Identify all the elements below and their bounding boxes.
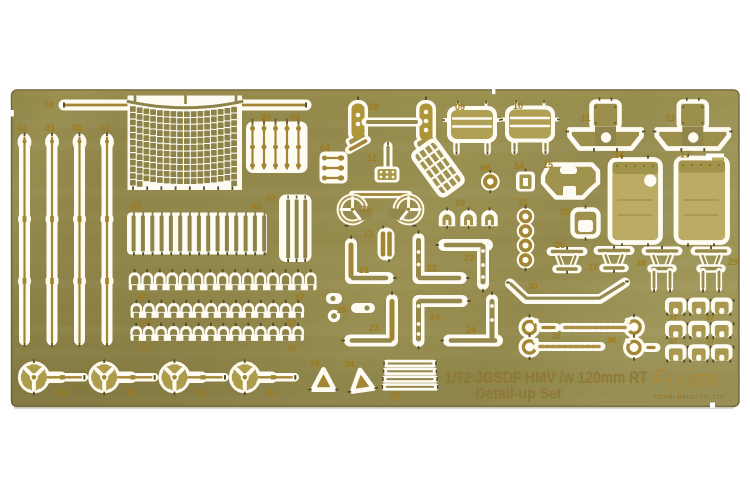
- svg-text:13: 13: [363, 229, 373, 239]
- svg-text:07: 07: [139, 292, 149, 302]
- svg-text:12: 12: [367, 153, 377, 163]
- svg-text:01: 01: [18, 123, 28, 133]
- svg-text:02: 02: [44, 100, 54, 110]
- svg-text:36: 36: [607, 336, 616, 345]
- svg-text:Fujimi: Fujimi: [652, 364, 719, 394]
- svg-text:35: 35: [390, 391, 400, 401]
- svg-text:21: 21: [359, 265, 369, 275]
- svg-text:19: 19: [455, 198, 465, 208]
- svg-text:16: 16: [614, 150, 624, 160]
- svg-text:34: 34: [345, 359, 355, 369]
- svg-text:03: 03: [131, 202, 141, 212]
- svg-text:33: 33: [267, 388, 277, 398]
- svg-text:37: 37: [669, 337, 677, 346]
- svg-text:23: 23: [369, 323, 379, 333]
- svg-text:32: 32: [266, 193, 276, 203]
- svg-text:34: 34: [310, 358, 320, 368]
- svg-text:01: 01: [73, 123, 83, 133]
- svg-text:36: 36: [552, 332, 561, 341]
- svg-text:03: 03: [251, 202, 261, 212]
- svg-text:07: 07: [287, 318, 297, 328]
- svg-text:10: 10: [513, 101, 523, 111]
- svg-text:30: 30: [528, 281, 538, 291]
- svg-text:18: 18: [361, 204, 371, 214]
- svg-text:20: 20: [560, 207, 570, 217]
- svg-text:08: 08: [369, 102, 379, 112]
- svg-text:01: 01: [100, 123, 110, 133]
- svg-text:FUJIMI MOKEI CO.,LTD: FUJIMI MOKEI CO.,LTD: [654, 395, 724, 401]
- svg-text:07: 07: [140, 318, 150, 328]
- svg-text:17: 17: [680, 150, 690, 160]
- svg-text:07: 07: [288, 343, 298, 353]
- svg-text:01: 01: [45, 123, 55, 133]
- svg-text:22: 22: [427, 263, 437, 273]
- svg-text:37: 37: [669, 313, 677, 322]
- svg-text:37: 37: [706, 337, 714, 346]
- svg-text:24: 24: [430, 312, 440, 322]
- svg-text:Detail-up Set: Detail-up Set: [476, 386, 563, 403]
- svg-text:26: 26: [555, 240, 565, 250]
- svg-text:09: 09: [455, 102, 465, 112]
- svg-text:11: 11: [581, 113, 591, 123]
- svg-text:05: 05: [261, 113, 271, 123]
- svg-text:28: 28: [636, 258, 646, 268]
- svg-text:14: 14: [514, 161, 524, 171]
- svg-text:04: 04: [320, 143, 330, 153]
- svg-text:15: 15: [543, 160, 553, 170]
- svg-text:07: 07: [140, 343, 150, 353]
- svg-text:1/72 JGSDF HMV /w 120mm RT: 1/72 JGSDF HMV /w 120mm RT: [445, 368, 648, 387]
- svg-text:22: 22: [464, 253, 474, 263]
- svg-text:05: 05: [290, 113, 300, 123]
- svg-text:33: 33: [197, 388, 207, 398]
- svg-text:37: 37: [706, 313, 714, 322]
- svg-text:11: 11: [666, 113, 676, 123]
- svg-text:33: 33: [56, 388, 66, 398]
- svg-text:31: 31: [518, 197, 528, 207]
- svg-text:07: 07: [295, 292, 305, 302]
- svg-text:25: 25: [337, 305, 347, 315]
- svg-text:06: 06: [481, 163, 491, 173]
- svg-text:27: 27: [588, 262, 598, 272]
- svg-text:29: 29: [728, 257, 738, 267]
- svg-text:33: 33: [126, 388, 136, 398]
- svg-text:24: 24: [466, 325, 476, 335]
